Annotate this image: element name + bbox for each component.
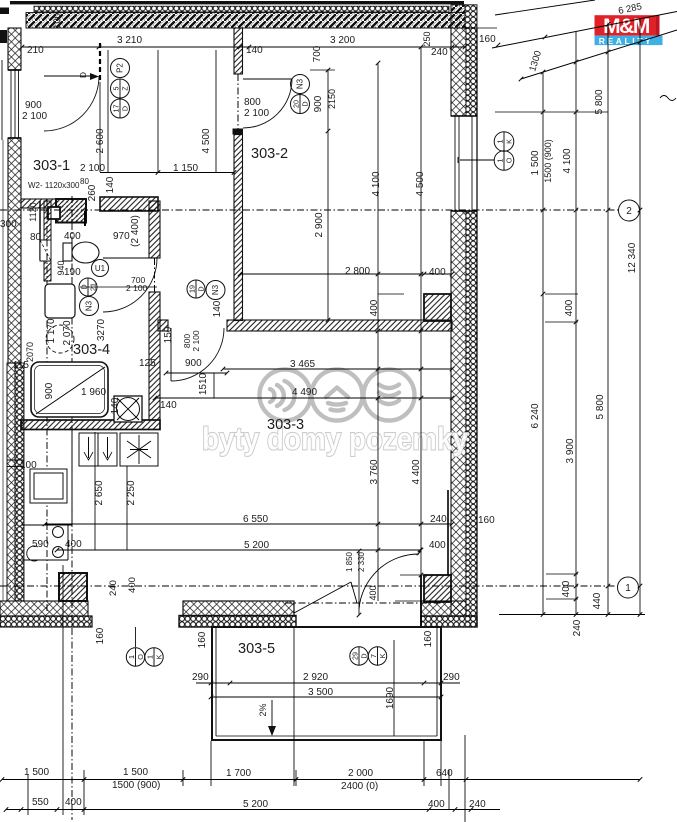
- svg-text:800: 800: [244, 97, 261, 108]
- svg-text:160: 160: [197, 631, 208, 648]
- svg-text:4 400: 4 400: [411, 459, 422, 484]
- svg-text:1 700: 1 700: [226, 768, 251, 779]
- svg-text:190: 190: [64, 267, 81, 278]
- svg-text:5 200: 5 200: [243, 799, 268, 810]
- svg-text:80: 80: [80, 177, 89, 186]
- svg-text:440: 440: [592, 592, 603, 609]
- svg-text:2 900: 2 900: [314, 212, 325, 237]
- svg-text:250: 250: [422, 31, 432, 46]
- svg-text:970: 970: [113, 231, 130, 242]
- svg-text:1 500: 1 500: [123, 767, 148, 778]
- svg-text:700: 700: [312, 45, 323, 62]
- svg-text:400: 400: [65, 797, 82, 808]
- svg-text:400: 400: [429, 540, 446, 551]
- svg-text:N3: N3: [84, 300, 93, 311]
- svg-text:2 000: 2 000: [348, 768, 373, 779]
- svg-text:400: 400: [64, 231, 81, 242]
- svg-text:12 340: 12 340: [627, 242, 638, 273]
- svg-text:100: 100: [20, 460, 37, 471]
- svg-text:125: 125: [139, 358, 156, 369]
- svg-text:400: 400: [127, 577, 138, 593]
- svg-text:160: 160: [479, 34, 496, 45]
- svg-text:160: 160: [478, 515, 495, 526]
- svg-text:1 960: 1 960: [81, 387, 106, 398]
- svg-text:240: 240: [572, 619, 583, 636]
- svg-text:400: 400: [368, 585, 378, 600]
- svg-text:1 850: 1 850: [345, 551, 354, 572]
- svg-text:5 200: 5 200: [244, 540, 269, 551]
- svg-text:900: 900: [44, 382, 55, 399]
- svg-text:1300: 1300: [527, 49, 544, 72]
- svg-text:2%: 2%: [258, 703, 268, 716]
- svg-text:303-2: 303-2: [251, 146, 288, 162]
- svg-text:6 550: 6 550: [243, 514, 268, 525]
- svg-text:1510: 1510: [198, 372, 209, 395]
- svg-text:240: 240: [431, 47, 448, 58]
- svg-text:(2 400): (2 400): [130, 215, 141, 247]
- svg-text:1 500: 1 500: [530, 150, 541, 175]
- svg-text:2 650: 2 650: [94, 480, 105, 505]
- svg-text:K: K: [378, 653, 387, 658]
- svg-text:1 500: 1 500: [24, 767, 49, 778]
- svg-text:3 200: 3 200: [330, 35, 355, 46]
- svg-text:300: 300: [0, 219, 17, 230]
- svg-text:6 240: 6 240: [530, 403, 541, 428]
- svg-text:W2- 1120x300: W2- 1120x300: [28, 181, 80, 190]
- svg-text:3 210: 3 210: [117, 35, 142, 46]
- svg-text:100: 100: [52, 13, 63, 29]
- svg-text:240: 240: [108, 580, 119, 596]
- svg-text:2150: 2150: [327, 89, 337, 109]
- svg-text:140: 140: [212, 300, 223, 317]
- svg-text:2 920: 2 920: [303, 672, 328, 683]
- svg-text:303-5: 303-5: [238, 641, 275, 657]
- svg-text:240: 240: [430, 514, 447, 525]
- svg-text:D: D: [120, 106, 129, 111]
- svg-text:303-1: 303-1: [33, 158, 70, 174]
- svg-text:160: 160: [423, 630, 434, 647]
- svg-text:140: 140: [160, 400, 177, 411]
- svg-text:1120: 1120: [28, 202, 38, 221]
- svg-text:4 500: 4 500: [415, 171, 426, 196]
- svg-text:byty domy pozemky: byty domy pozemky: [202, 421, 468, 457]
- svg-text:400: 400: [428, 799, 445, 810]
- svg-text:80: 80: [30, 232, 42, 243]
- svg-text:210: 210: [27, 45, 44, 56]
- svg-text:O: O: [504, 157, 513, 163]
- svg-text:3270: 3270: [96, 318, 107, 341]
- svg-text:1690: 1690: [385, 686, 396, 709]
- svg-text:3 900: 3 900: [565, 438, 576, 463]
- svg-text:D: D: [78, 72, 88, 78]
- svg-text:2 250: 2 250: [126, 480, 137, 505]
- svg-text:Z: Z: [120, 86, 129, 91]
- svg-text:400: 400: [564, 299, 575, 316]
- svg-text:K: K: [504, 139, 513, 144]
- svg-text:2 100: 2 100: [191, 330, 201, 352]
- svg-text:140: 140: [246, 45, 263, 56]
- svg-text:303-4: 303-4: [73, 342, 110, 358]
- svg-text:3 760: 3 760: [369, 459, 380, 484]
- svg-text:140: 140: [110, 397, 121, 414]
- svg-text:3 465: 3 465: [290, 359, 315, 370]
- svg-text:400: 400: [429, 267, 446, 278]
- svg-text:2 100: 2 100: [80, 163, 105, 174]
- svg-text:5 800: 5 800: [595, 394, 606, 419]
- svg-text:900: 900: [313, 95, 324, 112]
- svg-text:900: 900: [185, 358, 202, 369]
- svg-text:2070: 2070: [25, 342, 35, 362]
- svg-text:2 600: 2 600: [95, 128, 106, 153]
- svg-text:290: 290: [443, 672, 460, 683]
- svg-text:4 490: 4 490: [292, 387, 317, 398]
- svg-text:4 100: 4 100: [562, 148, 573, 173]
- svg-text:P2: P2: [115, 63, 124, 73]
- svg-text:U1: U1: [95, 264, 106, 273]
- svg-text:3 500: 3 500: [308, 687, 333, 698]
- svg-text:1500 (900): 1500 (900): [112, 780, 160, 791]
- svg-text:640: 640: [436, 768, 453, 779]
- svg-text:O: O: [136, 654, 145, 660]
- svg-text:4 100: 4 100: [371, 171, 382, 196]
- svg-text:D: D: [300, 101, 309, 106]
- svg-text:4 500: 4 500: [201, 128, 212, 153]
- svg-text:2 100: 2 100: [126, 283, 148, 293]
- svg-text:K: K: [154, 654, 163, 659]
- svg-text:150: 150: [163, 326, 174, 343]
- svg-text:240: 240: [469, 799, 486, 810]
- svg-text:REALITY: REALITY: [599, 36, 654, 46]
- svg-text:2 100: 2 100: [22, 111, 47, 122]
- svg-text:N3: N3: [295, 78, 304, 89]
- svg-text:115: 115: [13, 360, 29, 371]
- svg-text:2400 (0): 2400 (0): [341, 781, 378, 792]
- svg-text:590: 590: [32, 539, 49, 550]
- svg-text:1500 (900): 1500 (900): [543, 139, 553, 183]
- svg-text:400: 400: [65, 539, 82, 550]
- svg-text:400: 400: [369, 299, 380, 316]
- svg-text:1: 1: [625, 583, 631, 594]
- svg-text:2 100: 2 100: [244, 108, 269, 119]
- svg-text:21: 21: [88, 283, 97, 291]
- svg-text:290: 290: [192, 672, 209, 683]
- svg-text:160: 160: [95, 627, 106, 644]
- svg-text:2 070: 2 070: [62, 320, 73, 345]
- svg-text:900: 900: [25, 100, 42, 111]
- svg-text:D: D: [196, 286, 205, 291]
- svg-text:303-3: 303-3: [267, 417, 304, 433]
- svg-text:D: D: [359, 653, 368, 658]
- svg-text:260: 260: [87, 184, 98, 201]
- svg-text:2: 2: [626, 206, 632, 217]
- svg-text:N3: N3: [211, 284, 220, 295]
- svg-text:2 800: 2 800: [345, 266, 370, 277]
- svg-text:140: 140: [105, 176, 116, 193]
- svg-text:5 800: 5 800: [594, 89, 605, 114]
- svg-text:1 150: 1 150: [173, 163, 198, 174]
- svg-text:400: 400: [561, 580, 572, 597]
- svg-text:1 170: 1 170: [46, 318, 57, 343]
- svg-text:2 330: 2 330: [357, 551, 366, 572]
- svg-text:550: 550: [32, 797, 49, 808]
